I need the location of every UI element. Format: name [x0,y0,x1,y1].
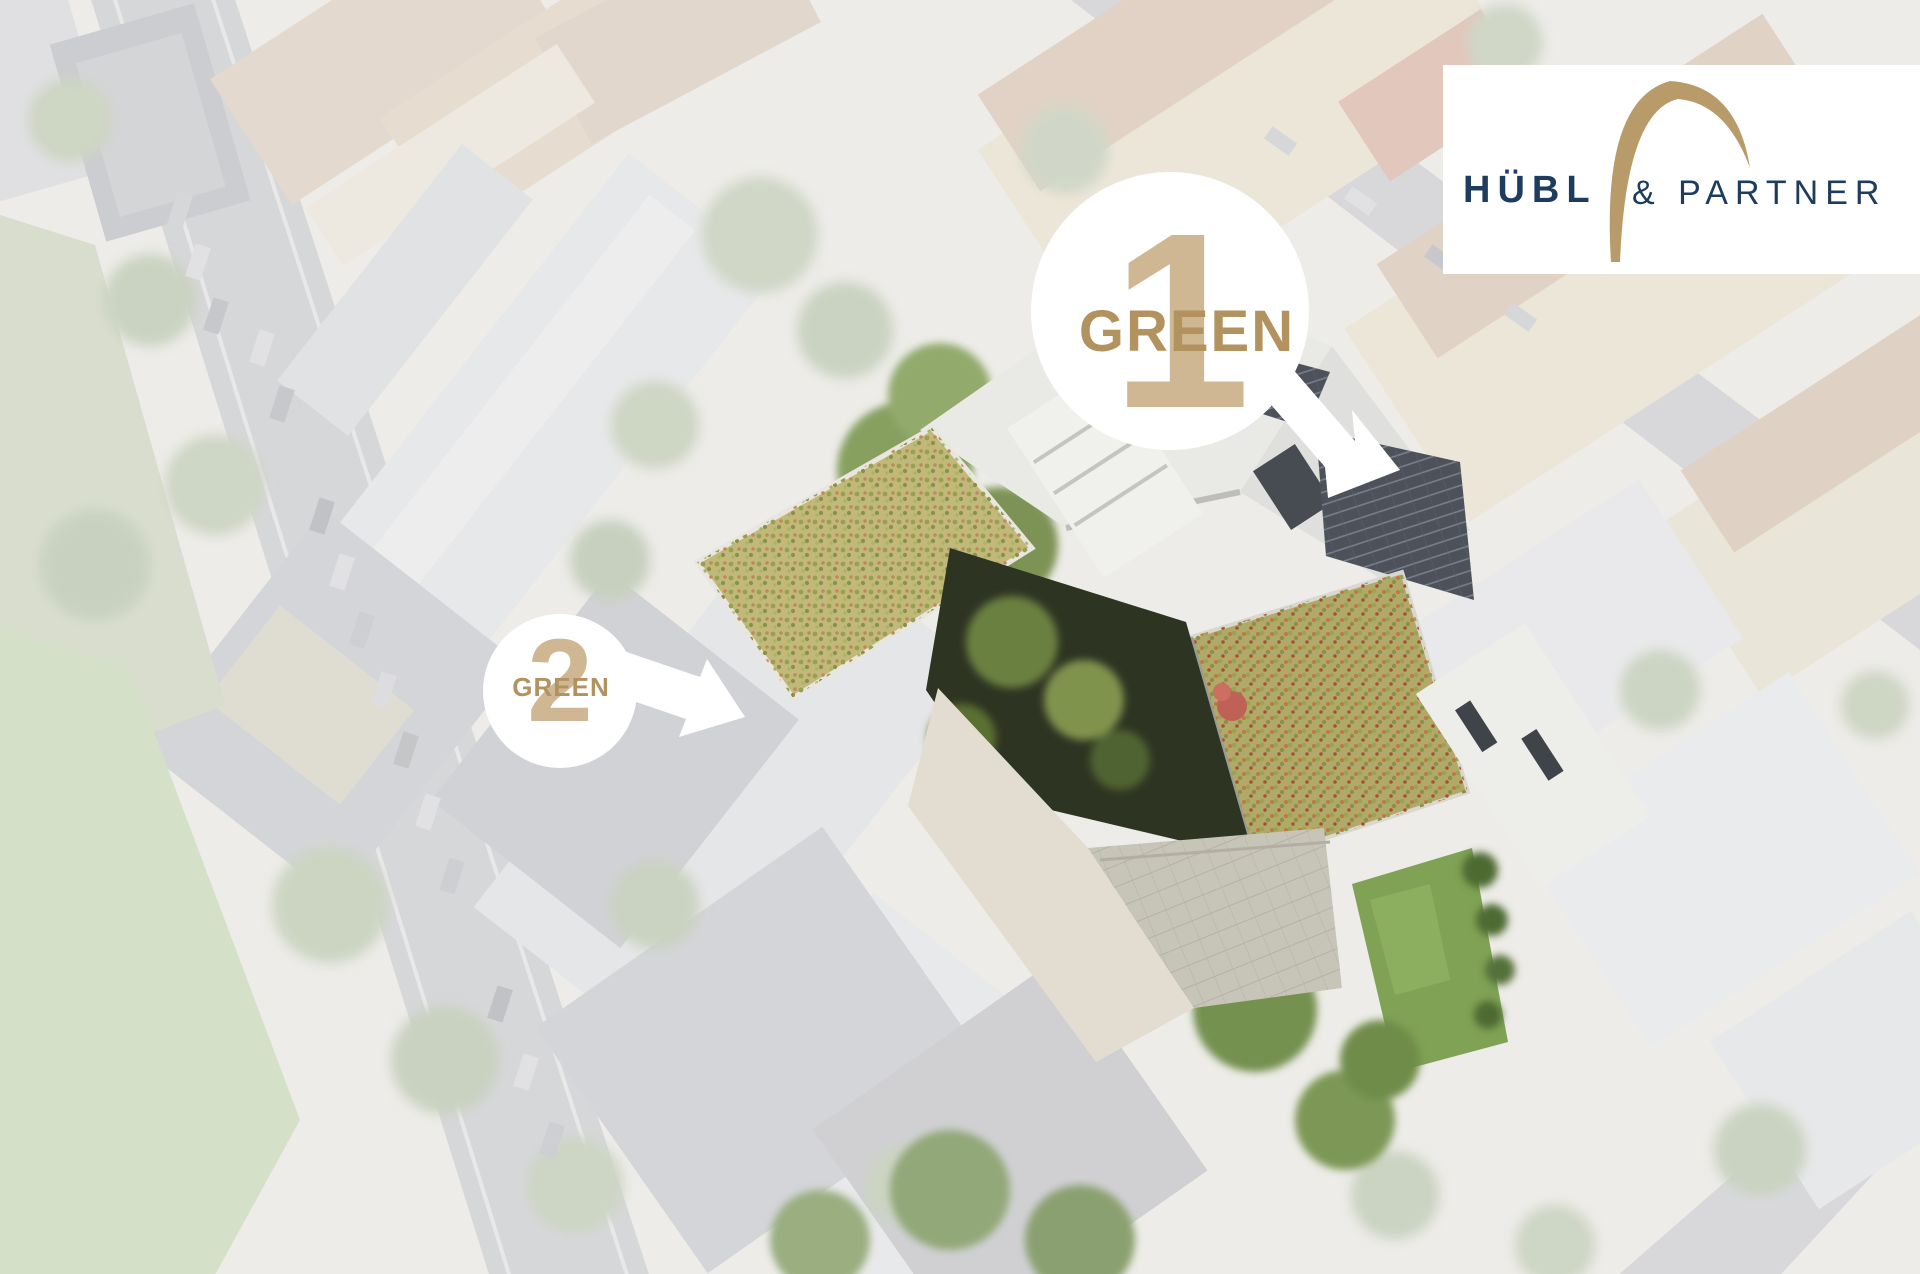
logo: HÜBL & PARTNER [1443,65,1920,274]
green-2-label: GREEN [484,610,638,764]
green-1-label: GREEN [1048,193,1326,471]
logo-primary-text: HÜBL [1463,169,1597,212]
green-1-badge: 1 GREEN [1031,172,1309,450]
green-2-badge: 2 GREEN [483,614,637,768]
logo-secondary-text: & PARTNER [1632,174,1886,213]
page: 1 GREEN 2 GREEN HÜBL & PARTNER [0,0,1920,1274]
